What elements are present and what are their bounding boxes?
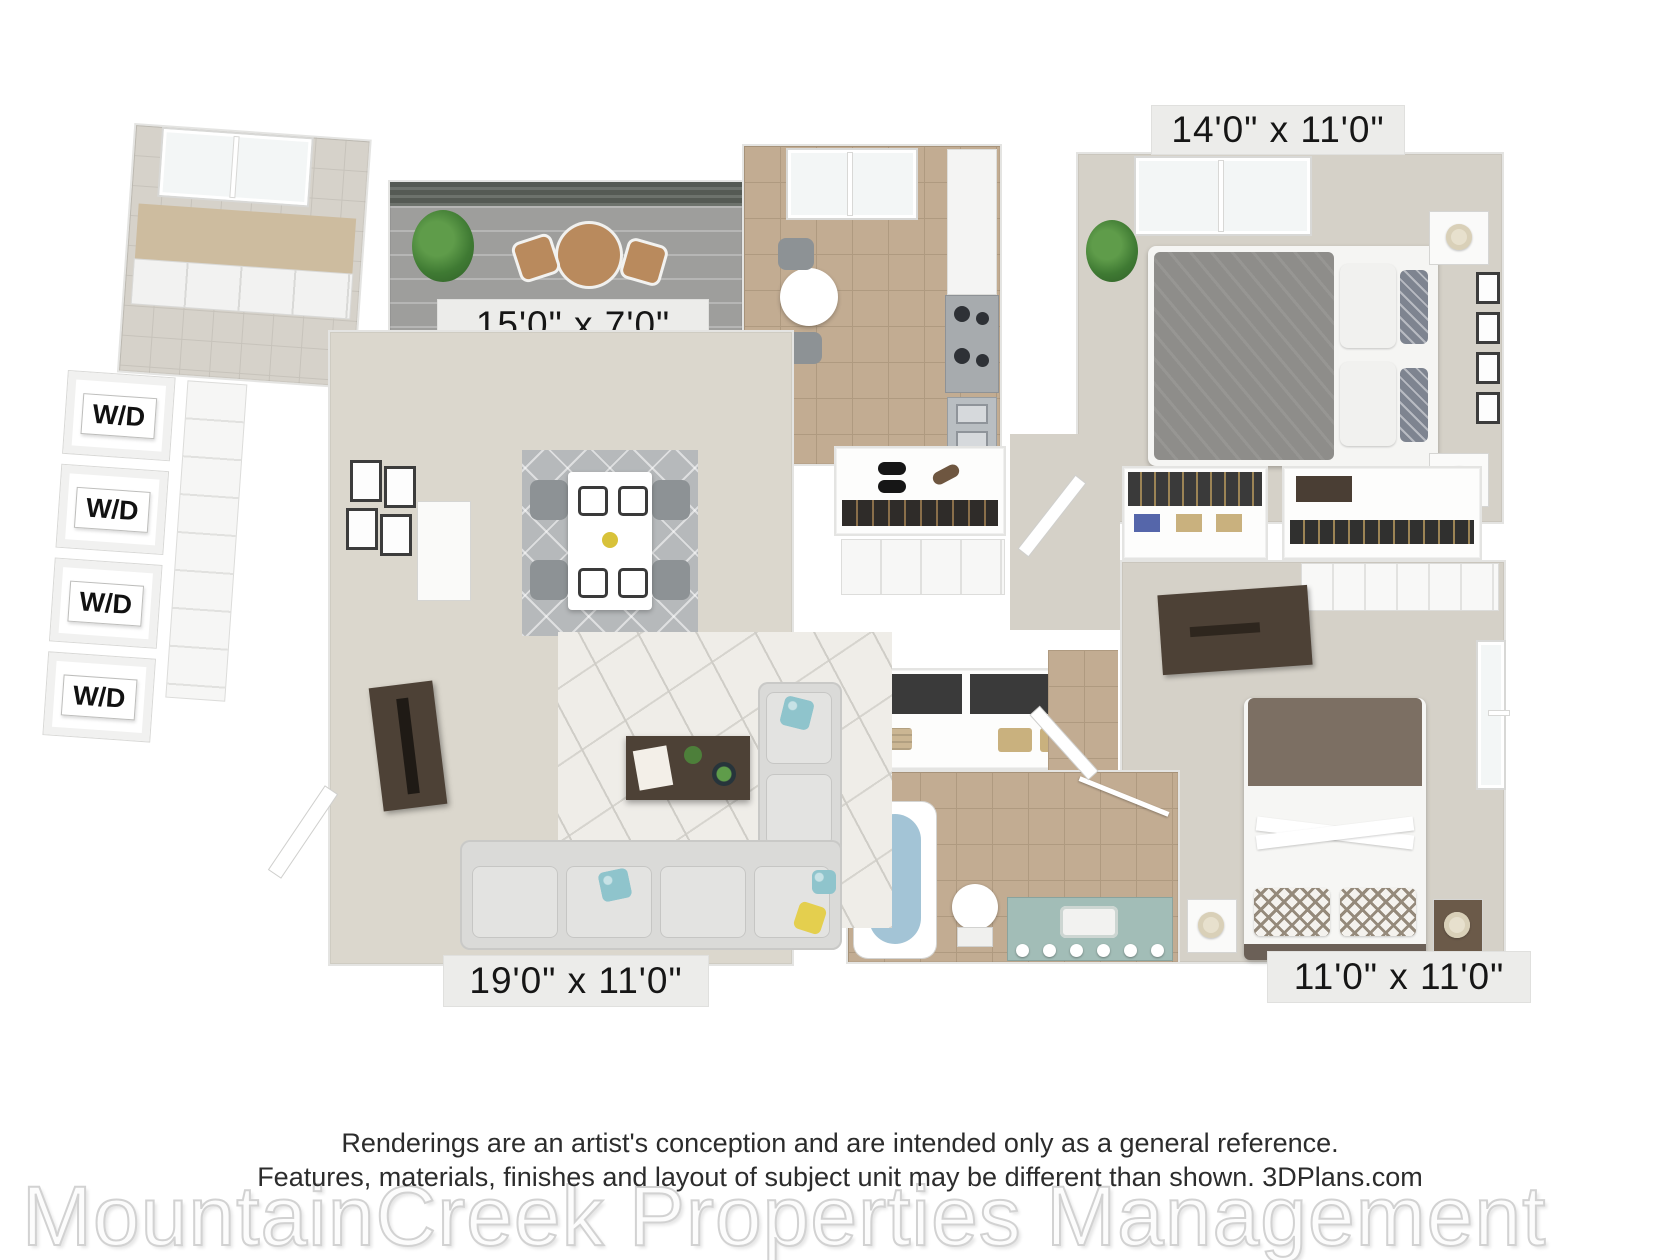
patio-railing [390, 182, 742, 206]
dining-chair [530, 560, 568, 600]
dining-table [568, 472, 652, 610]
master-dimension-label: 14'0" x 11'0" [1152, 106, 1404, 154]
master-pillow [1340, 362, 1396, 446]
vanity [1008, 898, 1172, 960]
sofa-chaise [758, 682, 842, 858]
wd-label: W/D [61, 674, 138, 720]
nightstand [1430, 212, 1488, 264]
patio-plant [412, 210, 474, 282]
wall-art [346, 508, 378, 550]
washer-dryer-unit: W/D [50, 559, 161, 648]
second-bedroom [1122, 562, 1504, 962]
bistro-table [558, 224, 620, 286]
bifold-closet-door [1302, 564, 1498, 610]
master-bed [1148, 246, 1438, 466]
washer-dryer-stack: W/D W/D W/D W/D [43, 371, 175, 753]
disclaimer-line-2: Features, materials, finishes and layout… [0, 1162, 1680, 1193]
master-plant [1086, 220, 1138, 282]
master-duvet [1154, 252, 1334, 460]
wall-art [1476, 392, 1500, 424]
wall-art [384, 466, 416, 508]
wall-art [1476, 272, 1500, 304]
bathroom [848, 772, 1178, 962]
shower-rod [1079, 776, 1170, 817]
nightstand [1188, 900, 1236, 952]
sofa [460, 840, 842, 950]
washer-dryer-unit: W/D [57, 465, 168, 554]
hallway [1010, 434, 1120, 630]
bedroom2-window [1478, 642, 1504, 788]
master-window [1136, 158, 1310, 234]
wall-art [1476, 352, 1500, 384]
washer-dryer-unit: W/D [63, 371, 174, 460]
dining-chair [530, 480, 568, 520]
master-accent-pillow [1400, 270, 1428, 344]
entry-door [269, 787, 337, 878]
wd-label: W/D [80, 393, 157, 439]
kitchen-window [788, 150, 916, 218]
living-room [330, 332, 792, 964]
coffee-table [626, 736, 750, 800]
bedroom2-bed [1244, 698, 1426, 960]
wd-label: W/D [67, 580, 144, 626]
wd-label: W/D [74, 486, 151, 532]
tv-stand [369, 681, 448, 812]
kitchen-counter [948, 150, 996, 294]
bath-hall-floor [1048, 650, 1118, 770]
bistro-chair [622, 240, 667, 285]
closet-right [1284, 468, 1480, 558]
left-wing: W/D W/D W/D W/D [38, 115, 378, 715]
master-bedroom [1078, 154, 1502, 522]
master-pillow [1340, 264, 1396, 348]
floorplan-image: W/D W/D W/D W/D 15'0" x 7'0" [0, 0, 1680, 1260]
bedroom2-dimension-label: 11'0" x 11'0" [1268, 952, 1530, 1002]
wall-art [380, 514, 412, 556]
wall-art [350, 460, 382, 502]
bistro-chair [513, 235, 558, 280]
dining-chair [652, 480, 690, 520]
console-cabinet [418, 502, 470, 600]
toilet [952, 884, 998, 946]
stove [946, 296, 998, 392]
hall-closet-doors [842, 540, 1004, 594]
dresser [1157, 585, 1312, 675]
breakfast-table [780, 268, 838, 326]
dining-chair [652, 560, 690, 600]
wall-art [1476, 312, 1500, 344]
laundry-window [159, 129, 311, 205]
closet-left [1124, 468, 1266, 558]
master-accent-pillow [1400, 368, 1428, 442]
washer-dryer-unit: W/D [43, 652, 154, 741]
hall-closet-doors [166, 381, 246, 700]
disclaimer-line-1: Renderings are an artist's conception an… [0, 1128, 1680, 1159]
nightstand [1434, 900, 1482, 952]
master-dimension-text: 14'0" x 11'0" [1171, 109, 1384, 151]
bedroom2-dimension-text: 11'0" x 11'0" [1294, 956, 1504, 998]
kitchen-chair [778, 238, 814, 270]
living-dimension-label: 19'0" x 11'0" [444, 956, 708, 1006]
entry-closet [836, 448, 1004, 534]
living-dimension-text: 19'0" x 11'0" [469, 960, 682, 1002]
